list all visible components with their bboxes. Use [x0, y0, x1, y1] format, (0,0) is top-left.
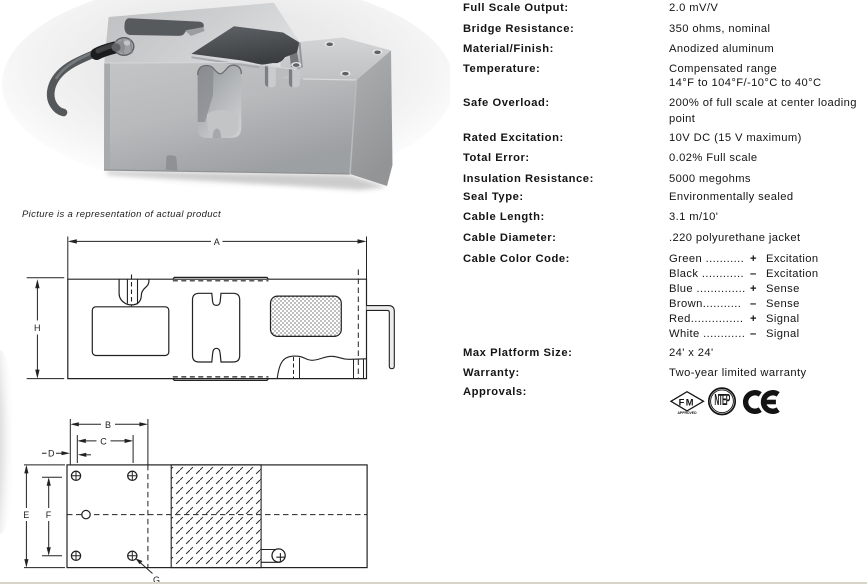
svg-text:C: C [100, 436, 107, 446]
svg-text:E: E [23, 510, 29, 520]
svg-text:F: F [46, 510, 52, 520]
svg-text:NTEP: NTEP [714, 391, 730, 409]
svg-text:D: D [48, 449, 55, 459]
svg-text:APPROVED: APPROVED [677, 411, 697, 415]
svg-text:FM: FM [679, 397, 695, 407]
svg-text:B: B [105, 420, 111, 430]
